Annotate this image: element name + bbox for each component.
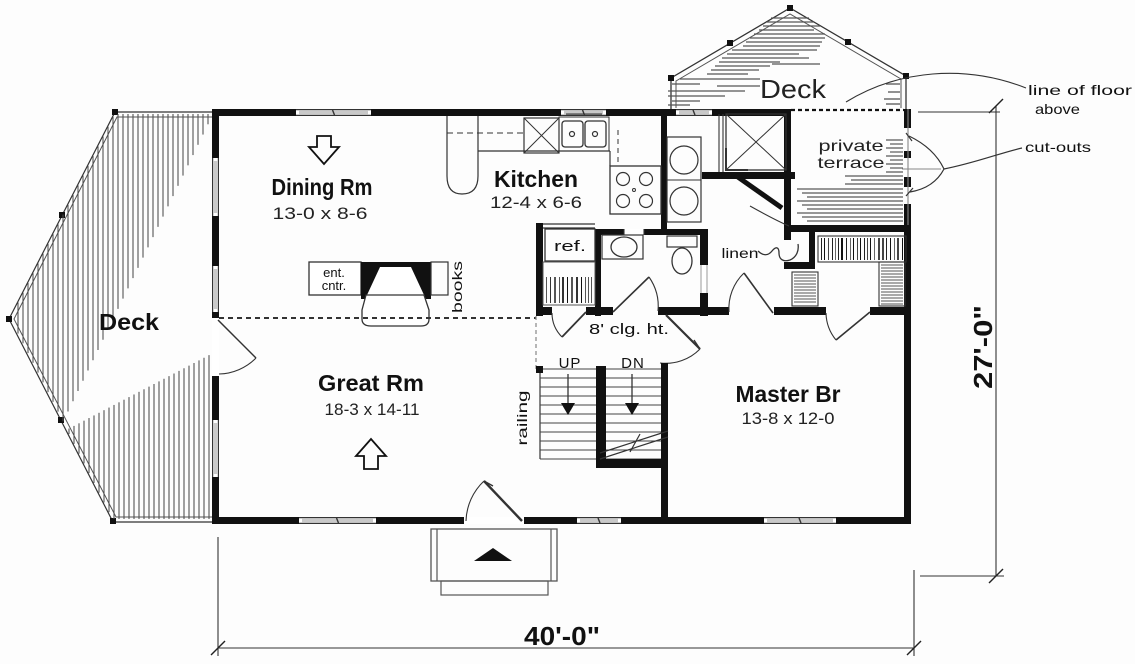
svg-text:above: above xyxy=(1035,101,1080,117)
svg-text:40'-0": 40'-0" xyxy=(524,621,600,651)
svg-text:18-3 x 14-11: 18-3 x 14-11 xyxy=(325,400,420,419)
svg-text:Dining Rm: Dining Rm xyxy=(272,174,373,200)
svg-text:Master Br: Master Br xyxy=(736,381,841,407)
svg-text:Great Rm: Great Rm xyxy=(318,370,424,396)
svg-text:Deck: Deck xyxy=(99,309,159,335)
svg-text:12-4 x 6-6: 12-4 x 6-6 xyxy=(490,193,582,212)
svg-text:ref.: ref. xyxy=(554,238,586,255)
svg-text:private: private xyxy=(819,138,884,155)
svg-text:Deck: Deck xyxy=(760,74,827,104)
svg-text:DN: DN xyxy=(621,355,645,372)
svg-text:13-0 x 8-6: 13-0 x 8-6 xyxy=(273,204,368,223)
svg-text:Kitchen: Kitchen xyxy=(494,166,578,192)
svg-text:railing: railing xyxy=(514,391,530,446)
svg-text:27'-0": 27'-0" xyxy=(968,305,998,389)
svg-text:terrace: terrace xyxy=(818,155,885,172)
svg-text:linen: linen xyxy=(722,245,759,261)
svg-text:books: books xyxy=(449,261,465,313)
svg-text:line of floor: line of floor xyxy=(1028,82,1133,98)
svg-text:UP: UP xyxy=(559,355,582,372)
svg-text:cntr.: cntr. xyxy=(322,278,347,293)
svg-text:13-8 x 12-0: 13-8 x 12-0 xyxy=(742,409,835,428)
svg-text:cut-outs: cut-outs xyxy=(1025,139,1091,155)
svg-text:8' clg. ht.: 8' clg. ht. xyxy=(589,321,669,338)
